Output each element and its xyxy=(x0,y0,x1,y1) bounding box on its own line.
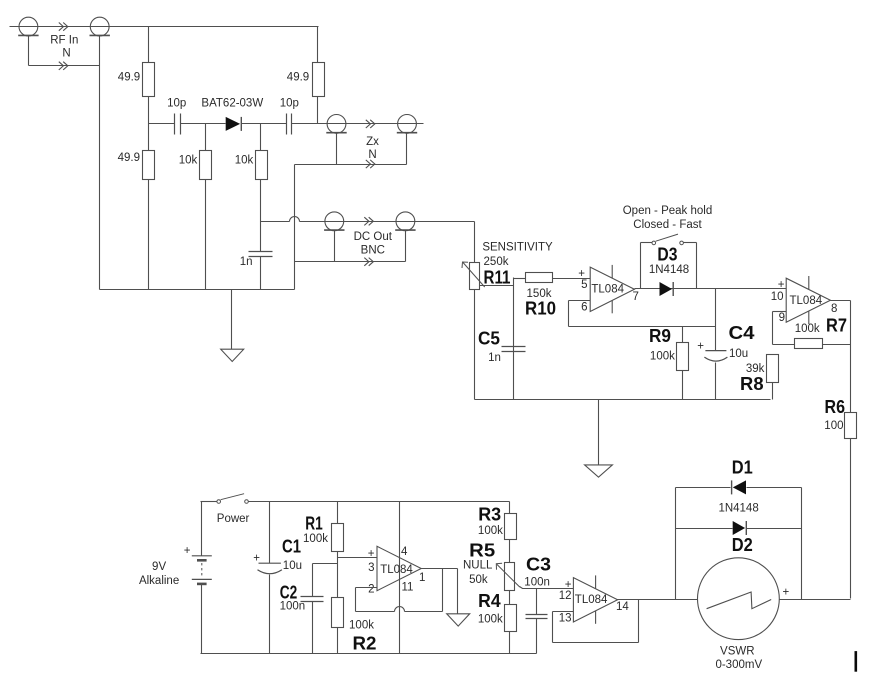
svg-text:R6: R6 xyxy=(825,397,846,417)
svg-text:R7: R7 xyxy=(826,316,847,336)
svg-text:0-300mV: 0-300mV xyxy=(715,659,762,671)
svg-text:3: 3 xyxy=(368,562,374,574)
svg-text:10p: 10p xyxy=(167,98,186,110)
svg-text:1: 1 xyxy=(419,572,425,584)
svg-text:11: 11 xyxy=(402,582,414,594)
svg-text:9: 9 xyxy=(779,312,785,324)
svg-text:10u: 10u xyxy=(729,348,748,360)
svg-text:N: N xyxy=(368,149,376,161)
svg-text:+: + xyxy=(697,341,704,353)
svg-text:49.9: 49.9 xyxy=(287,72,309,84)
svg-text:R1: R1 xyxy=(305,514,323,534)
svg-text:10u: 10u xyxy=(283,560,302,572)
svg-text:10k: 10k xyxy=(235,155,254,167)
svg-text:R5: R5 xyxy=(469,541,495,561)
svg-text:100k: 100k xyxy=(650,351,675,363)
svg-text:100k: 100k xyxy=(349,620,374,632)
svg-text:R9: R9 xyxy=(649,326,671,346)
svg-text:100k: 100k xyxy=(478,525,503,537)
svg-text:6: 6 xyxy=(581,302,587,314)
svg-text:C5: C5 xyxy=(478,329,500,349)
svg-text:SENSITIVITY: SENSITIVITY xyxy=(482,241,553,253)
svg-text:BAT62-03W: BAT62-03W xyxy=(201,98,263,110)
svg-text:250k: 250k xyxy=(484,256,509,268)
svg-text:N: N xyxy=(62,47,70,59)
svg-text:100n: 100n xyxy=(280,601,306,613)
svg-text:+: + xyxy=(184,545,191,557)
svg-text:D1: D1 xyxy=(732,458,753,478)
svg-text:1N4148: 1N4148 xyxy=(718,502,758,514)
svg-text:100: 100 xyxy=(824,420,843,432)
svg-text:D3: D3 xyxy=(657,245,677,265)
svg-text:VSWR: VSWR xyxy=(720,645,755,657)
svg-text:14: 14 xyxy=(616,601,629,613)
svg-text:100n: 100n xyxy=(524,577,550,589)
svg-text:39k: 39k xyxy=(746,363,765,375)
svg-text:DC Out: DC Out xyxy=(354,231,393,243)
svg-text:C1: C1 xyxy=(282,537,301,557)
svg-text:13: 13 xyxy=(559,613,572,625)
svg-text:BNC: BNC xyxy=(361,244,385,256)
svg-text:R2: R2 xyxy=(353,634,377,654)
svg-text:49.9: 49.9 xyxy=(118,72,140,84)
svg-text:10p: 10p xyxy=(280,98,299,110)
svg-text:5: 5 xyxy=(581,279,587,291)
svg-text:C3: C3 xyxy=(526,555,551,575)
svg-text:10k: 10k xyxy=(179,155,198,167)
svg-text:Closed - Fast: Closed - Fast xyxy=(633,219,702,231)
svg-text:R10: R10 xyxy=(525,299,556,319)
svg-text:50k: 50k xyxy=(469,574,488,586)
svg-text:R8: R8 xyxy=(740,374,764,394)
svg-text:R11: R11 xyxy=(484,268,511,288)
svg-text:4: 4 xyxy=(401,546,408,558)
svg-text:100k: 100k xyxy=(478,613,503,625)
svg-text:TL084: TL084 xyxy=(790,295,823,307)
svg-text:TL084: TL084 xyxy=(575,594,608,606)
svg-text:RF In: RF In xyxy=(50,35,78,47)
svg-text:D2: D2 xyxy=(732,535,753,555)
svg-text:R3: R3 xyxy=(478,505,501,525)
svg-text:Power: Power xyxy=(217,513,250,525)
svg-text:1N4148: 1N4148 xyxy=(649,264,689,276)
svg-text:TL084: TL084 xyxy=(380,564,413,576)
svg-text:Zx: Zx xyxy=(366,136,379,148)
svg-text:49.9: 49.9 xyxy=(118,152,140,164)
svg-text:2: 2 xyxy=(368,583,374,595)
svg-text:+: + xyxy=(782,586,789,598)
svg-text:TL084: TL084 xyxy=(591,283,624,295)
svg-text:100k: 100k xyxy=(795,323,820,335)
svg-text:9V: 9V xyxy=(152,561,166,573)
svg-text:7: 7 xyxy=(633,291,639,303)
svg-text:C4: C4 xyxy=(729,323,755,343)
svg-text:+: + xyxy=(778,279,785,291)
svg-text:NULL: NULL xyxy=(463,560,493,572)
svg-text:10: 10 xyxy=(771,291,784,303)
svg-text:R4: R4 xyxy=(478,591,501,611)
svg-text:+: + xyxy=(368,548,375,560)
svg-text:C2: C2 xyxy=(280,583,298,603)
svg-text:1n: 1n xyxy=(240,256,253,268)
svg-text:Alkaline: Alkaline xyxy=(139,575,179,587)
svg-text:Open - Peak hold: Open - Peak hold xyxy=(623,205,713,217)
svg-text:12: 12 xyxy=(559,590,572,602)
svg-text:1n: 1n xyxy=(488,352,501,364)
svg-text:100k: 100k xyxy=(303,533,328,545)
svg-text:8: 8 xyxy=(831,303,837,315)
